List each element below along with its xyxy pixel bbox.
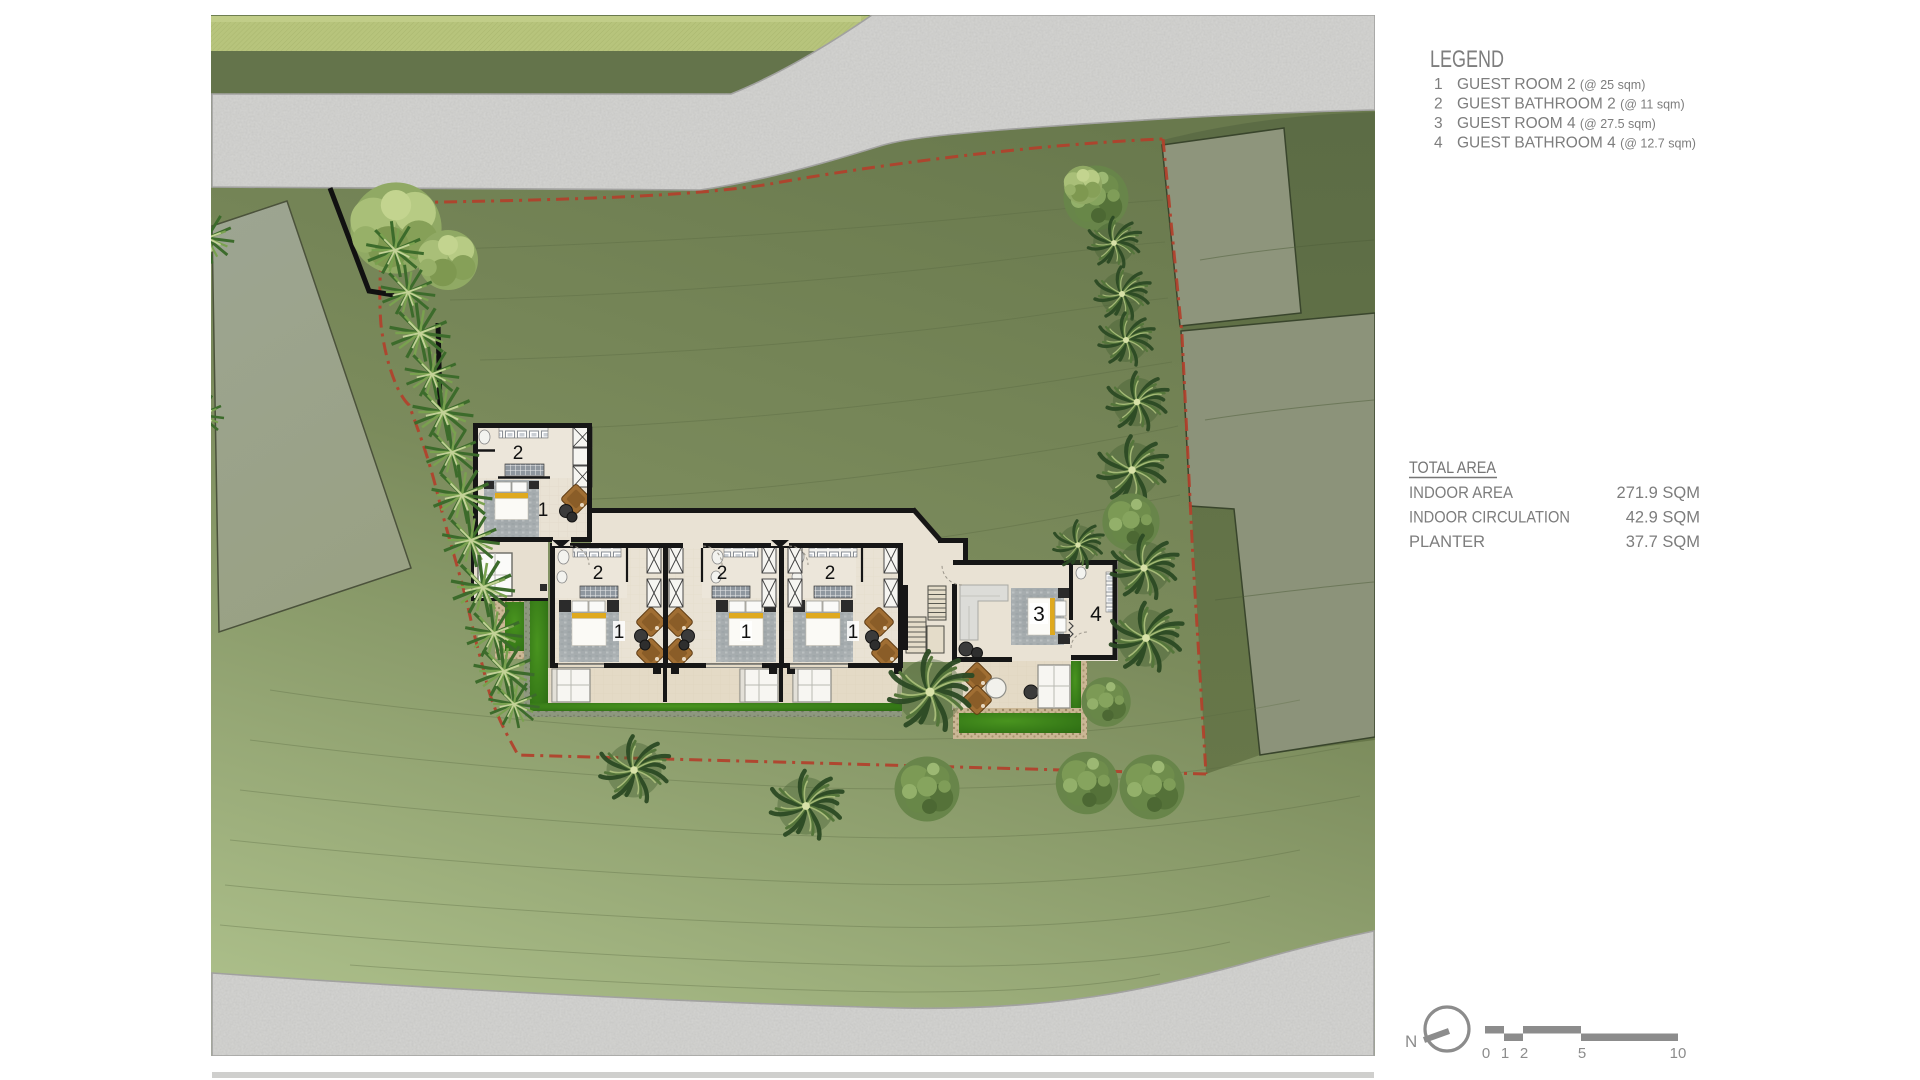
svg-text:4: 4	[1090, 603, 1102, 626]
svg-text:10: 10	[1670, 1045, 1687, 1062]
svg-text:TOTAL AREA: TOTAL AREA	[1409, 458, 1497, 477]
svg-text:37.7 SQM: 37.7 SQM	[1626, 533, 1700, 551]
svg-text:N: N	[1405, 1032, 1417, 1051]
svg-text:2: 2	[1520, 1045, 1528, 1062]
svg-text:LEGEND: LEGEND	[1430, 46, 1504, 73]
svg-text:GUEST BATHROOM 4 (@ 12.7 sqm): GUEST BATHROOM 4 (@ 12.7 sqm)	[1457, 135, 1696, 152]
svg-text:271.9 SQM: 271.9 SQM	[1617, 484, 1700, 502]
svg-text:1: 1	[538, 500, 549, 521]
svg-text:42.9 SQM: 42.9 SQM	[1626, 509, 1700, 527]
svg-text:GUEST ROOM 2 (@ 25 sqm): GUEST ROOM 2 (@ 25 sqm)	[1457, 76, 1645, 93]
svg-text:GUEST BATHROOM 2 (@ 11 sqm): GUEST BATHROOM 2 (@ 11 sqm)	[1457, 96, 1685, 113]
svg-text:3: 3	[1434, 115, 1443, 132]
svg-text:0: 0	[1482, 1045, 1490, 1062]
svg-text:PLANTER: PLANTER	[1409, 533, 1485, 551]
svg-text:2: 2	[593, 563, 604, 584]
svg-text:INDOOR CIRCULATION: INDOOR CIRCULATION	[1409, 509, 1570, 527]
svg-text:INDOOR AREA: INDOOR AREA	[1409, 484, 1513, 502]
svg-text:1: 1	[741, 622, 752, 643]
svg-text:1: 1	[1434, 76, 1443, 93]
svg-text:2: 2	[1434, 96, 1443, 113]
svg-text:2: 2	[825, 563, 836, 584]
svg-text:GUEST ROOM 4 (@ 27.5 sqm): GUEST ROOM 4 (@ 27.5 sqm)	[1457, 115, 1656, 132]
svg-text:1: 1	[1501, 1045, 1509, 1062]
svg-text:5: 5	[1578, 1045, 1586, 1062]
svg-text:4: 4	[1434, 135, 1443, 152]
svg-text:2: 2	[717, 563, 728, 584]
svg-text:1: 1	[848, 622, 859, 643]
svg-text:1: 1	[614, 622, 625, 643]
svg-text:3: 3	[1033, 603, 1045, 626]
svg-text:2: 2	[513, 443, 524, 464]
